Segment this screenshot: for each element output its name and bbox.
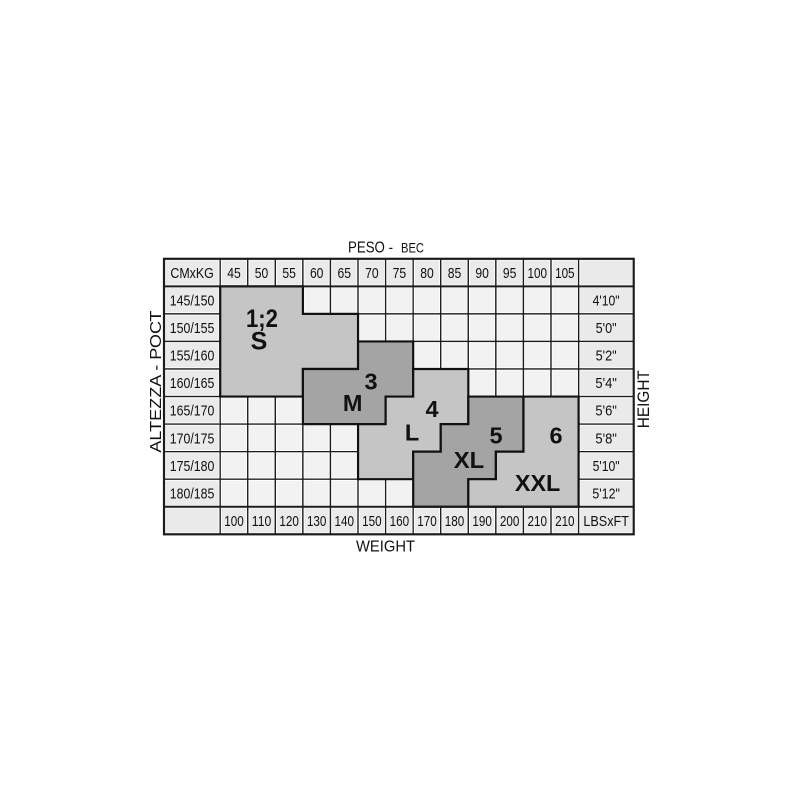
svg-text:L: L [405,420,419,446]
svg-text:80: 80 [420,265,434,282]
svg-text:110: 110 [252,513,272,530]
svg-text:65: 65 [338,265,352,282]
svg-text:S: S [251,328,268,356]
svg-text:160/165: 160/165 [170,375,215,392]
svg-text:50: 50 [255,265,269,282]
svg-text:75: 75 [393,265,407,282]
svg-text:145/150: 145/150 [170,293,215,310]
svg-text:6: 6 [549,423,562,449]
svg-text:ALTEZZA - РОСТ: ALTEZZA - РОСТ [148,310,165,453]
svg-text:5'2": 5'2" [596,348,617,365]
svg-text:160: 160 [390,513,410,530]
svg-text:XXL: XXL [515,470,561,496]
svg-text:5'6": 5'6" [595,403,617,420]
svg-text:5'4": 5'4" [595,375,617,392]
svg-text:170/175: 170/175 [170,430,215,447]
svg-text:150: 150 [362,513,382,530]
svg-text:210: 210 [555,513,575,530]
svg-text:70: 70 [365,265,379,282]
svg-text:CMxKG: CMxKG [170,265,214,282]
svg-text:170: 170 [417,513,437,530]
svg-text:150/155: 150/155 [170,320,215,337]
svg-text:155/160: 155/160 [170,348,215,365]
svg-text:5'12": 5'12" [592,485,620,502]
svg-text:175/180: 175/180 [170,458,215,475]
svg-text:45: 45 [227,265,241,282]
svg-text:55: 55 [282,265,296,282]
svg-text:85: 85 [448,265,462,282]
svg-text:100: 100 [224,513,244,530]
svg-text:ВЕС: ВЕС [401,240,424,256]
svg-text:180/185: 180/185 [170,485,215,502]
svg-text:M: M [343,390,363,416]
svg-text:5'0": 5'0" [596,320,617,337]
svg-text:120: 120 [279,513,299,530]
svg-text:130: 130 [307,513,327,530]
svg-text:4: 4 [425,396,438,422]
svg-text:WEIGHT: WEIGHT [356,539,415,556]
svg-text:5'8": 5'8" [595,430,617,447]
svg-text:90: 90 [475,265,489,282]
svg-text:200: 200 [500,513,520,530]
svg-text:95: 95 [503,265,517,282]
svg-text:3: 3 [364,369,377,395]
svg-text:210: 210 [528,513,548,530]
svg-text:180: 180 [445,513,465,530]
svg-text:140: 140 [335,513,355,530]
svg-text:60: 60 [310,265,324,282]
svg-text:HEIGHT: HEIGHT [635,370,653,428]
svg-text:105: 105 [555,265,575,282]
svg-text:XL: XL [454,447,485,473]
svg-text:LBSxFT: LBSxFT [583,513,629,530]
svg-text:PESO -: PESO - [348,240,393,257]
svg-text:5: 5 [489,423,502,449]
svg-text:100: 100 [528,265,548,282]
svg-text:165/170: 165/170 [170,403,215,420]
svg-text:4'10": 4'10" [593,293,620,310]
svg-text:190: 190 [472,513,492,530]
svg-text:5'10": 5'10" [593,458,620,475]
